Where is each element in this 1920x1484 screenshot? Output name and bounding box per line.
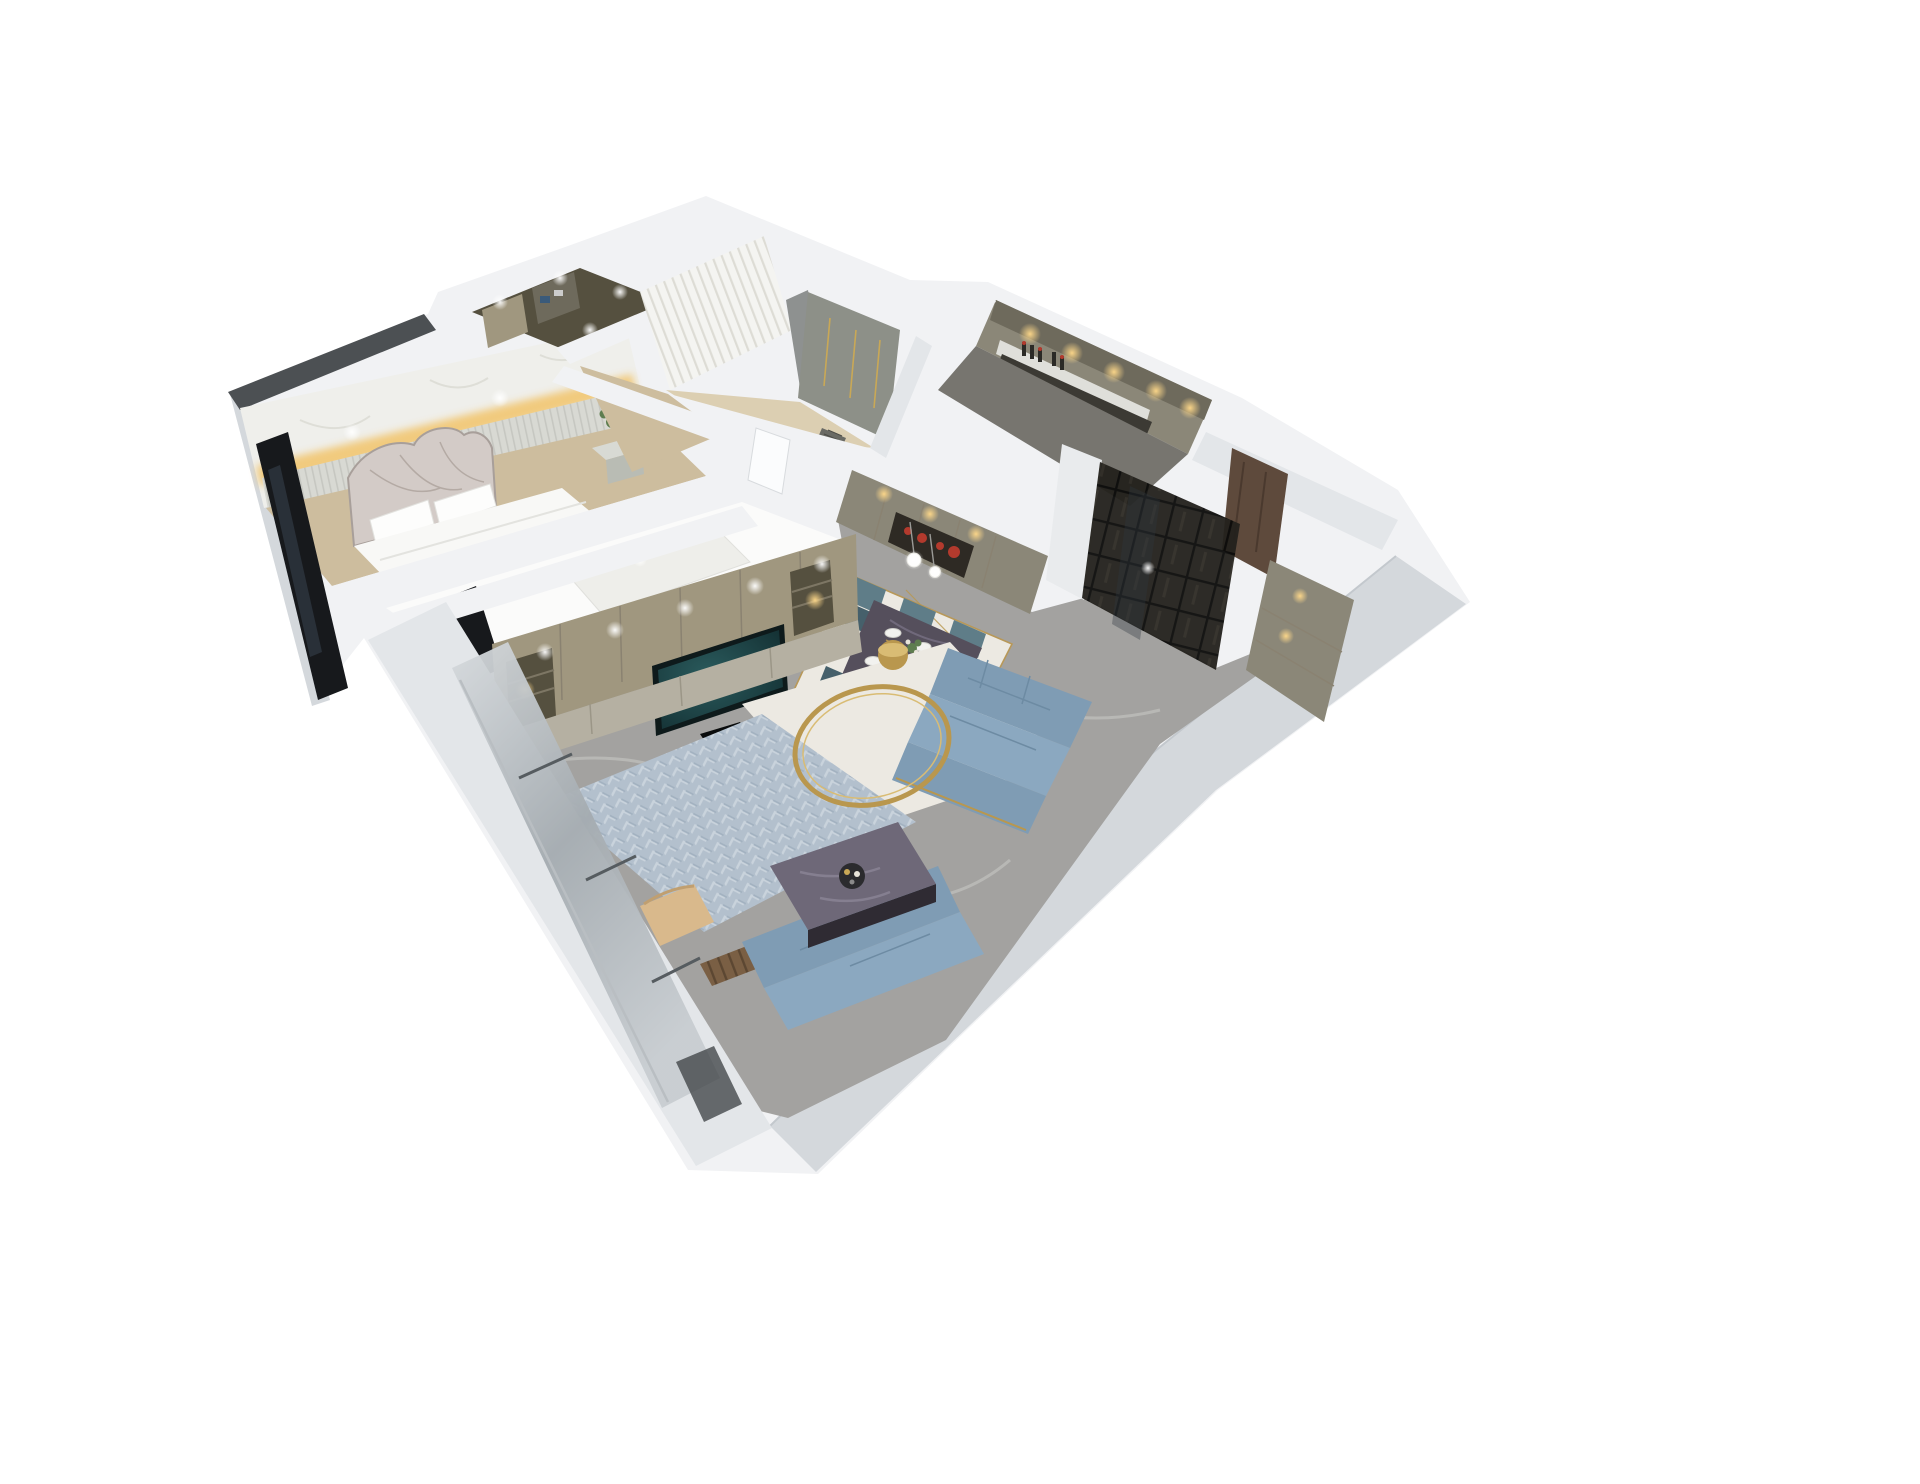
closet-downlight — [612, 284, 628, 300]
red-decor — [917, 533, 927, 543]
gold-side-table — [878, 640, 908, 670]
folded-clothes — [554, 290, 563, 296]
decor-tray — [839, 863, 865, 889]
display-glow — [1278, 628, 1294, 644]
floorplan-3d-render: S K Y D A N C E P R O D U C T I O N S — [0, 0, 1920, 1484]
pendant-reflection — [1141, 561, 1155, 575]
cabinet-glow — [1019, 323, 1041, 345]
cabinet-downlight — [921, 505, 939, 523]
cabinet-downlight — [967, 525, 985, 543]
wall-light — [491, 389, 509, 407]
wall-light — [343, 423, 361, 441]
cabinet-glow — [1145, 380, 1167, 402]
closet-downlight — [552, 270, 568, 286]
red-decor — [948, 546, 960, 558]
closet-downlight — [492, 294, 508, 310]
red-decor — [936, 542, 944, 550]
cabinet-glow — [1179, 397, 1201, 419]
folded-clothes — [540, 296, 550, 303]
render-canvas: S K Y D A N C E P R O D U C T I O N S — [0, 0, 1920, 1484]
cabinet-downlight — [875, 485, 893, 503]
cabinet-glow — [1103, 361, 1125, 383]
cabinet-glow — [1061, 342, 1083, 364]
display-glow — [1292, 588, 1308, 604]
